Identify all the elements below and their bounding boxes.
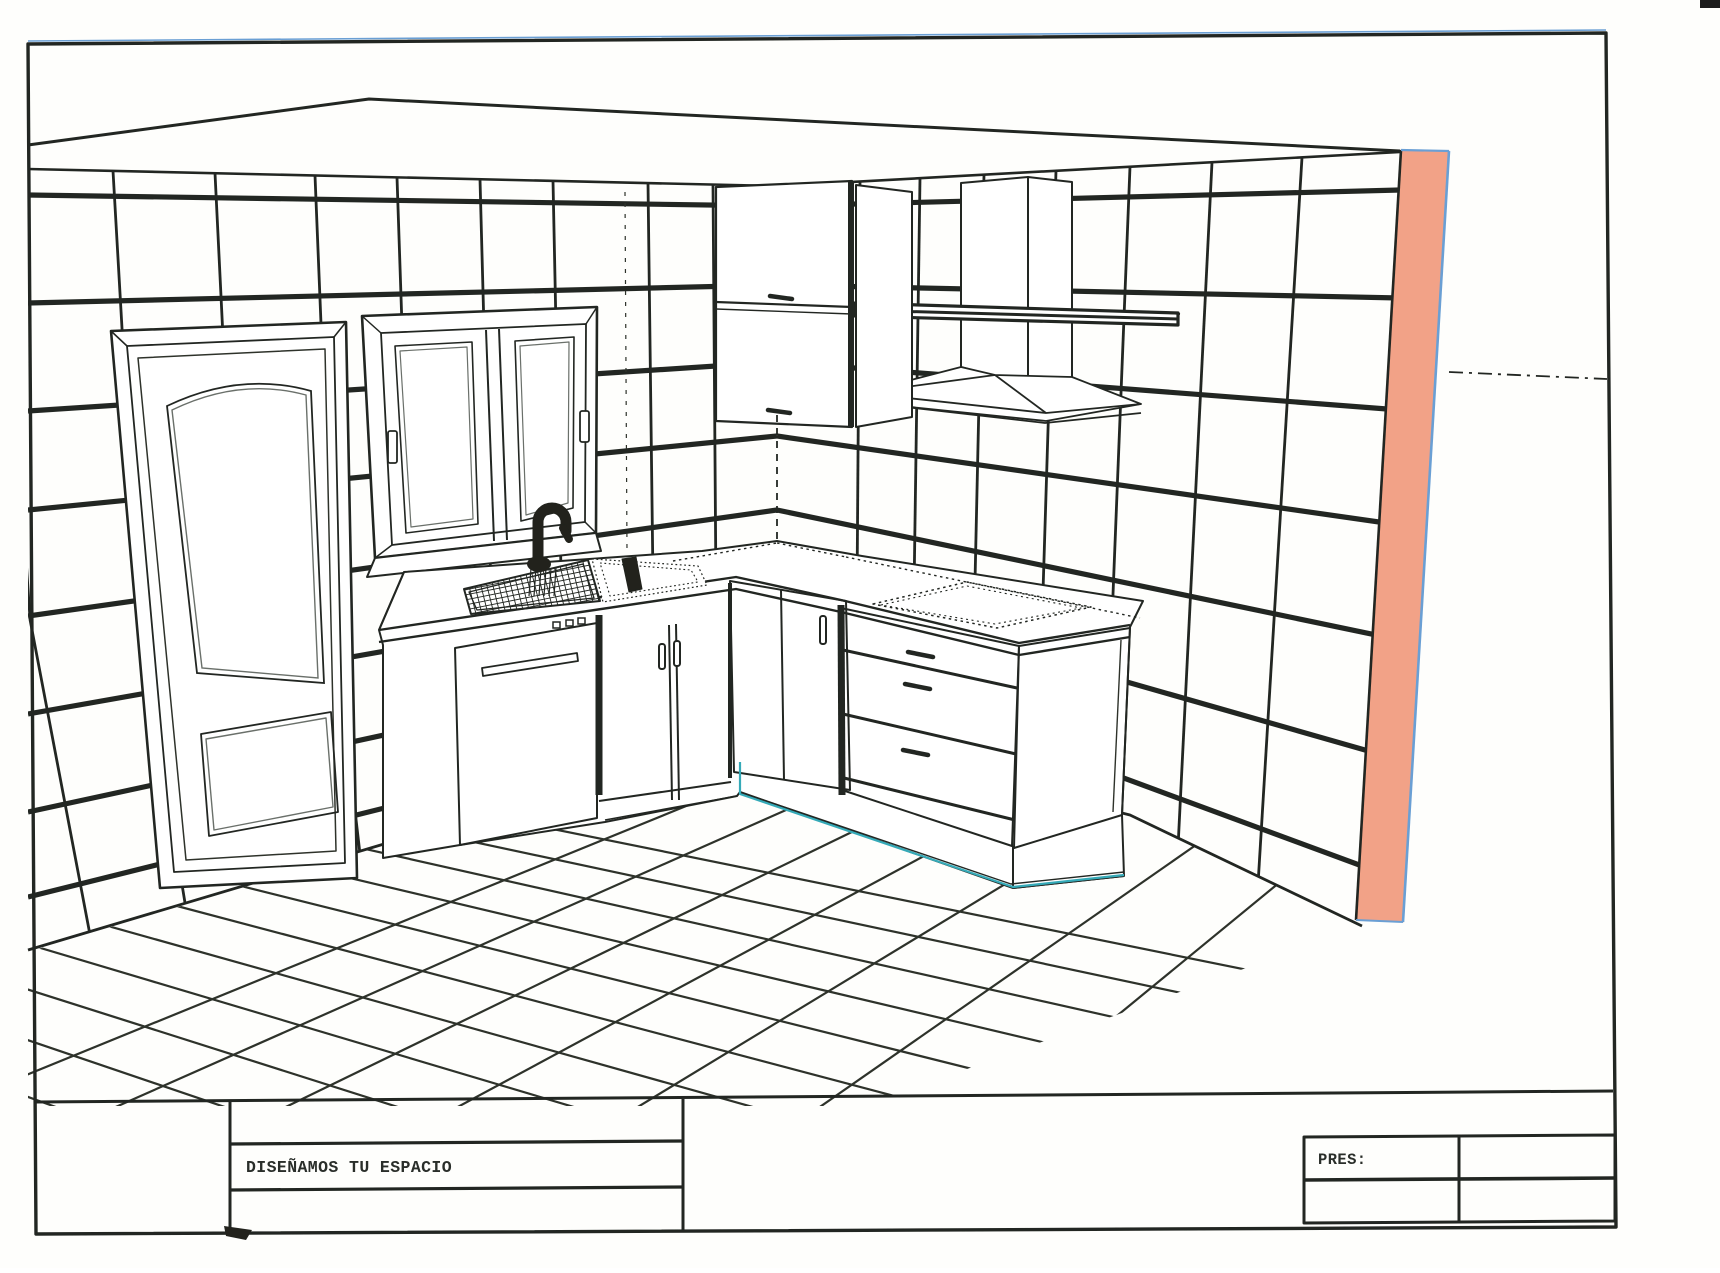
svg-text:DISEÑAMOS TU ESPACIO: DISEÑAMOS TU ESPACIO [246, 1157, 452, 1177]
svg-text:PRES:: PRES: [1318, 1151, 1367, 1169]
